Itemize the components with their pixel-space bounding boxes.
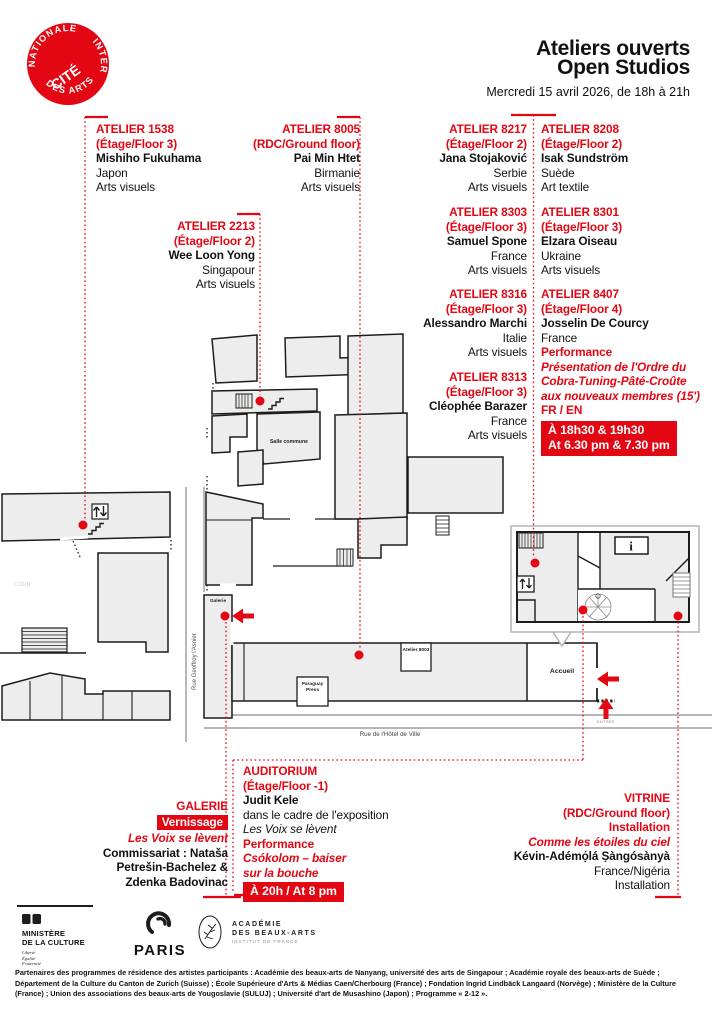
academie-beaux-arts-text: ACADÉMIE DES BEAUX-ARTS INSTITUT DE FRAN… xyxy=(232,920,317,946)
dot-auditorium xyxy=(579,606,588,615)
arrow-left-galerie-icon xyxy=(232,609,254,624)
artist-country: France xyxy=(377,414,527,429)
atelier-floor: (Étage/Floor 3) xyxy=(377,302,527,317)
academie-line3: INSTITUT DE FRANCE xyxy=(232,938,317,946)
poster-title: Ateliers ouverts Open Studios Mercredi 1… xyxy=(360,40,690,102)
atelier-8313-block: ATELIER 8313 (Étage/Floor 3) Cléophée Ba… xyxy=(377,370,527,443)
arrow-left-accueil-icon xyxy=(597,672,619,687)
galerie-block: GALERIE Vernissage Les Voix se lèvent Co… xyxy=(60,799,228,889)
artist-name: Josselin De Courcy xyxy=(541,316,709,331)
time-fr: À 18h30 & 19h30 xyxy=(548,423,670,438)
curator-line: Commissariat : Nataša xyxy=(60,846,228,861)
atelier-8208-block: ATELIER 8208 (Étage/Floor 2) Isak Sundst… xyxy=(541,122,701,195)
academie-line1: ACADÉMIE xyxy=(232,920,317,929)
footer-rule xyxy=(17,905,93,907)
dot-atelier-1538 xyxy=(79,521,88,530)
artist-discipline: Arts visuels xyxy=(377,345,527,360)
partners-text-line: Département de la Culture du Canton de Z… xyxy=(15,979,711,989)
artist-name: Samuel Spone xyxy=(377,234,527,249)
atelier-number: ATELIER 8316 xyxy=(377,287,527,302)
venue-name: GALERIE xyxy=(60,799,228,814)
atelier-floor: (Étage/Floor 4) xyxy=(541,302,709,317)
curator-line: Petrešin-Bachelez & xyxy=(60,860,228,875)
atelier-floor: (Étage/Floor 2) xyxy=(105,234,255,249)
artist-country: France xyxy=(377,249,527,264)
atelier-8003-label: Atelier 8003 xyxy=(401,648,431,654)
paraguay-press-label: Paraguay Press xyxy=(297,682,328,693)
artist-name: Cléophée Barazer xyxy=(377,399,527,414)
artist-name: Jana Stojaković xyxy=(377,151,527,166)
time-en: At 6.30 pm & 7.30 pm xyxy=(548,438,670,453)
galerie-label: Galerie xyxy=(204,599,232,605)
poster-page: i NATIONALE INTER DES ARTS CITÉ Ateliers… xyxy=(0,0,724,1024)
artist-country: Suède xyxy=(541,166,701,181)
atelier-8303-block: ATELIER 8303 (Étage/Floor 3) Samuel Spon… xyxy=(377,205,527,278)
rue-geoffroy-label: Rue Geoffroy l'Asnier xyxy=(192,560,199,690)
vitrine-block: VITRINE (RDC/Ground floor) Installation … xyxy=(483,791,670,893)
artist-country: France xyxy=(541,331,709,346)
performance-label: Performance xyxy=(541,345,709,360)
ministere-line2: DE LA CULTURE xyxy=(22,939,85,948)
dot-vitrine xyxy=(674,612,683,621)
rue-hotel-de-ville-label: Rue de l'Hôtel de Ville xyxy=(300,731,480,738)
atelier-floor: (Étage/Floor 2) xyxy=(541,137,701,152)
atelier-floor: (RDC/Ground floor) xyxy=(210,137,360,152)
performance-title: sur la bouche xyxy=(243,866,408,881)
salle-commune-label: Salle commune xyxy=(266,440,312,446)
dot-galerie xyxy=(221,612,230,621)
artist-name: Pai Min Htet xyxy=(210,151,360,166)
artist-discipline: Arts visuels xyxy=(210,180,360,195)
ministere-culture-logo: MINISTÈRE DE LA CULTURE Liberté Égalité … xyxy=(22,912,85,967)
dot-atelier-8005 xyxy=(355,651,364,660)
atelier-number: ATELIER 8407 xyxy=(541,287,709,302)
artist-name: Judit Kele xyxy=(243,793,408,808)
artist-discipline: Arts visuels xyxy=(541,263,701,278)
artist-country: Italie xyxy=(377,331,527,346)
artist-country: Birmanie xyxy=(210,166,360,181)
entree-label: ENTRÉE xyxy=(592,720,620,724)
atelier-8407-block: ATELIER 8407 (Étage/Floor 4) Josselin De… xyxy=(541,287,709,456)
event-date: Mercredi 15 avril 2026, de 18h à 21h xyxy=(360,83,690,102)
info-icon: i xyxy=(629,539,633,554)
spiral-stair-icon xyxy=(585,594,611,620)
atelier-8316-block: ATELIER 8316 (Étage/Floor 3) Alessandro … xyxy=(377,287,527,360)
academie-oval-icon xyxy=(196,913,224,953)
atelier-floor: (Étage/Floor 2) xyxy=(377,137,527,152)
performance-title: Présentation de l'Ordre du xyxy=(541,360,709,375)
artist-discipline: Arts visuels xyxy=(105,277,255,292)
performance-time-box: À 18h30 & 19h30 At 6.30 pm & 7.30 pm xyxy=(541,421,677,456)
performance-title: Cobra-Tuning-Pâté-Croûte xyxy=(541,374,709,389)
accueil-label: Accueil xyxy=(532,668,592,676)
cour-label: COUR xyxy=(14,583,31,589)
performance-title: Csókolom – baiser xyxy=(243,851,408,866)
artist-discipline: Art textile xyxy=(541,180,701,195)
venue-floor: (RDC/Ground floor) xyxy=(483,806,670,821)
installation-title: Comme les étoiles du ciel xyxy=(483,835,670,850)
artist-name: Elzara Oiseau xyxy=(541,234,701,249)
atelier-number: ATELIER 8303 xyxy=(377,205,527,220)
atelier-8005-block: ATELIER 8005 (RDC/Ground floor) Pai Min … xyxy=(210,122,360,195)
artist-name: Kévin-Adémọ́lá Ṣàngósànyà xyxy=(483,849,670,864)
motto-line: Fraternité xyxy=(22,961,85,967)
atelier-number: ATELIER 8301 xyxy=(541,205,701,220)
atelier-number: ATELIER 8217 xyxy=(377,122,527,137)
paris-swirl-icon xyxy=(145,910,175,937)
ville-de-paris-logo: PARIS xyxy=(128,910,192,959)
atelier-number: ATELIER 8208 xyxy=(541,122,701,137)
venue-name: VITRINE xyxy=(483,791,670,806)
atelier-floor: (Étage/Floor 3) xyxy=(377,220,527,235)
atelier-number: ATELIER 8005 xyxy=(210,122,360,137)
atelier-2213-block: ATELIER 2213 (Étage/Floor 2) Wee Loon Yo… xyxy=(105,219,255,292)
inset-callout xyxy=(511,526,699,646)
performance-label: Performance xyxy=(243,837,408,852)
exhibition-title: Les Voix se lèvent xyxy=(243,822,408,837)
academie-line2: DES BEAUX-ARTS xyxy=(232,929,317,938)
artist-discipline: Installation xyxy=(483,878,670,893)
partners-text-line: (France) ; Union des associations des be… xyxy=(15,989,711,999)
atelier-floor: (Étage/Floor 3) xyxy=(377,385,527,400)
performance-time-box: À 20h / At 8 pm xyxy=(243,882,344,902)
artist-name: Wee Loon Yong xyxy=(105,248,255,263)
artist-discipline: Arts visuels xyxy=(377,428,527,443)
context-line: dans le cadre de l'exposition xyxy=(243,808,408,823)
performance-languages: FR / EN xyxy=(541,403,709,418)
cite-internationale-des-arts-logo: NATIONALE INTER DES ARTS CITÉ xyxy=(0,0,140,140)
atelier-8217-block: ATELIER 8217 (Étage/Floor 2) Jana Stojak… xyxy=(377,122,527,195)
exhibition-title: Les Voix se lèvent xyxy=(60,831,228,846)
venue-floor: (Étage/Floor -1) xyxy=(243,779,408,794)
artist-country: Ukraine xyxy=(541,249,701,264)
ministere-flag-icon xyxy=(22,914,42,925)
paris-label: PARIS xyxy=(128,942,192,959)
title-line-en: Open Studios xyxy=(360,59,690,78)
artist-country: France/Nigéria xyxy=(483,864,670,879)
atelier-8301-block: ATELIER 8301 (Étage/Floor 3) Elzara Oise… xyxy=(541,205,701,278)
artist-country: Serbie xyxy=(377,166,527,181)
atelier-floor: (Étage/Floor 3) xyxy=(541,220,701,235)
auditorium-block: AUDITORIUM (Étage/Floor -1) Judit Kele d… xyxy=(243,764,408,902)
performance-title: aux nouveaux membres (15') xyxy=(541,389,709,404)
partners-text-line: Partenaires des programmes de résidence … xyxy=(15,968,711,978)
dot-atelier-2213 xyxy=(256,397,265,406)
artist-country: Singapour xyxy=(105,263,255,278)
curator-line: Zdenka Badovinac xyxy=(60,875,228,890)
dot-inset-left xyxy=(531,559,540,568)
artist-discipline: Arts visuels xyxy=(377,180,527,195)
venue-type: Installation xyxy=(483,820,670,835)
vernissage-badge: Vernissage xyxy=(157,815,228,831)
artist-discipline: Arts visuels xyxy=(377,263,527,278)
artist-name: Isak Sundström xyxy=(541,151,701,166)
academie-beaux-arts-logo xyxy=(196,913,224,958)
atelier-number: ATELIER 2213 xyxy=(105,219,255,234)
artist-name: Alessandro Marchi xyxy=(377,316,527,331)
atelier-number: ATELIER 8313 xyxy=(377,370,527,385)
venue-name: AUDITORIUM xyxy=(243,764,408,779)
